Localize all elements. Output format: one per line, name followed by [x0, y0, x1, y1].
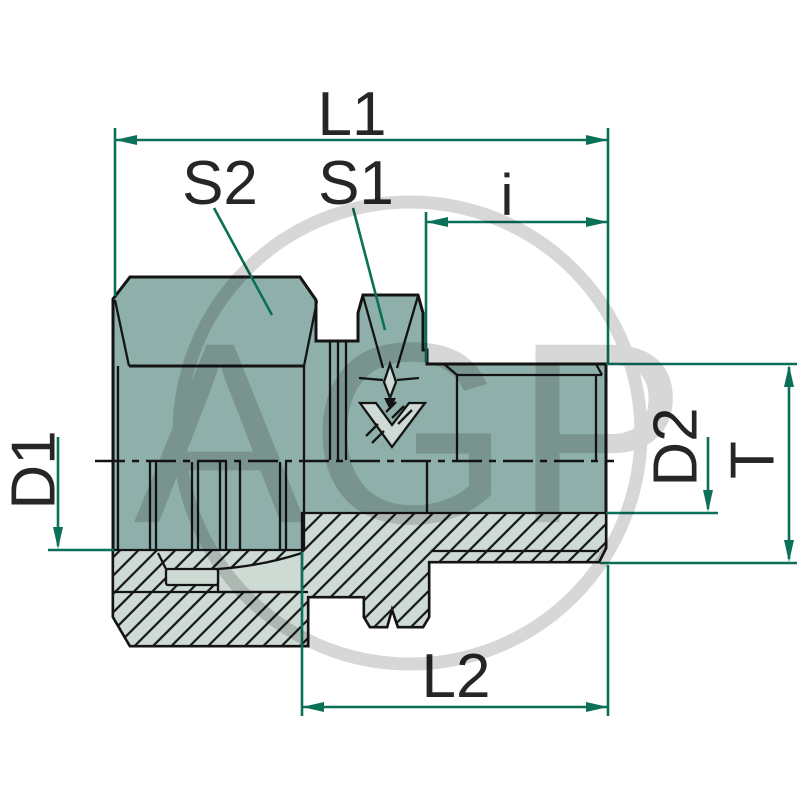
label-s2: S2: [182, 149, 258, 218]
watermark-text: AGP: [134, 288, 691, 577]
label-d1: D1: [0, 430, 69, 509]
dimension-d1: D1: [0, 430, 114, 550]
label-l1: L1: [318, 80, 387, 149]
fitting-technical-drawing: L1 i S2 S1 D1: [0, 0, 800, 800]
label-t: T: [719, 441, 788, 479]
drawing-page: L1 i S2 S1 D1: [0, 0, 800, 800]
